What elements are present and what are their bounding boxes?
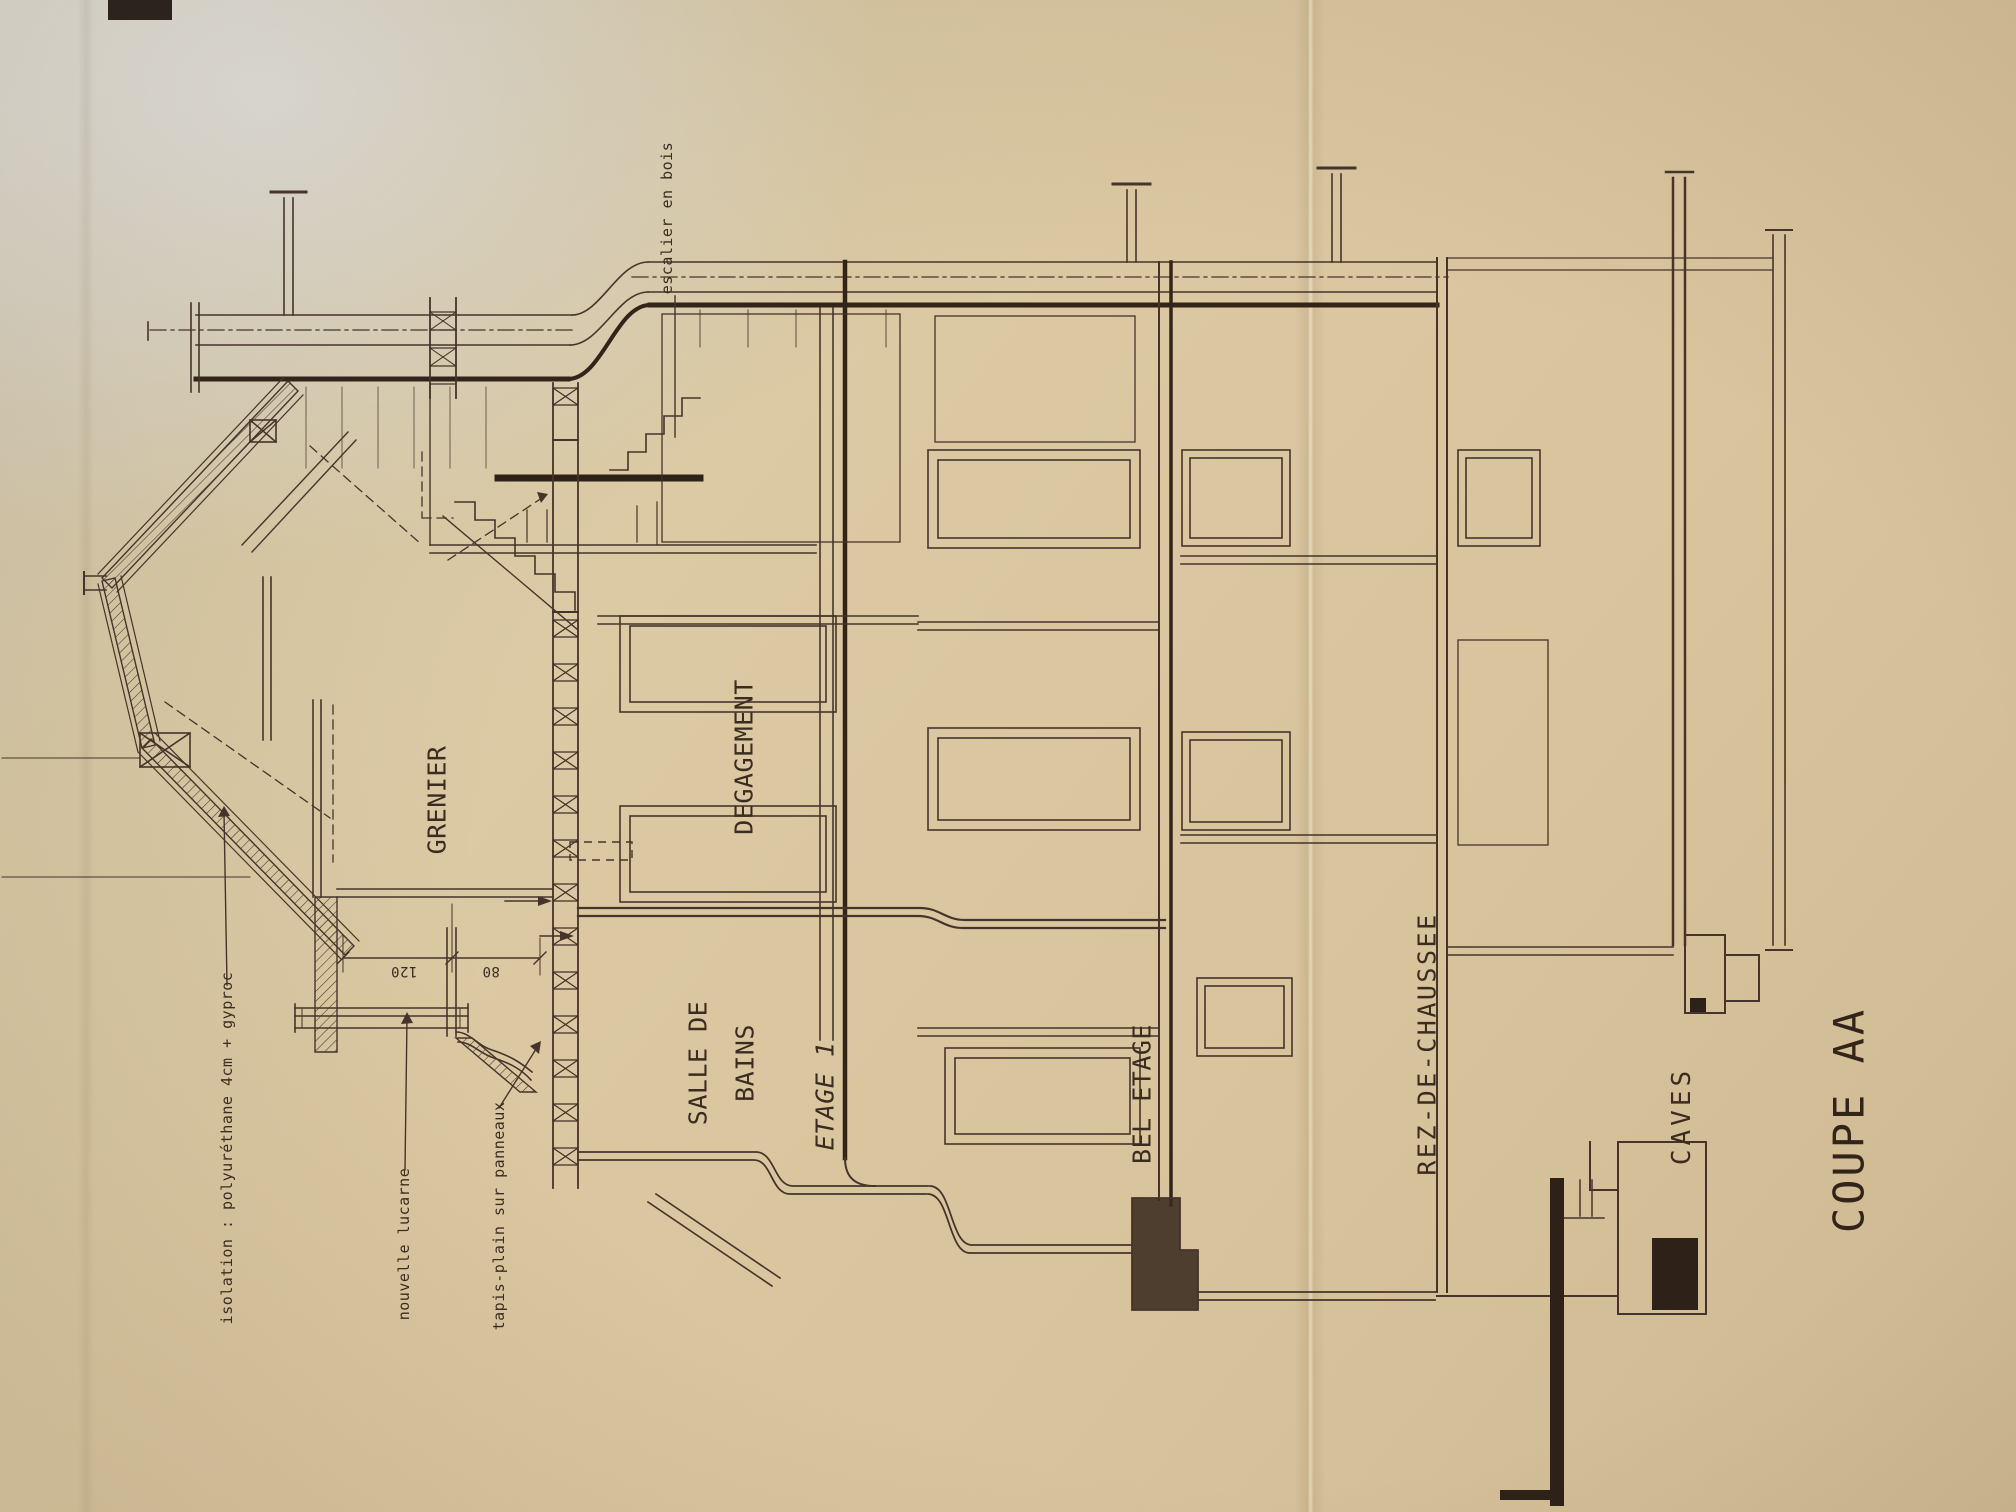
room-label-degagement: DEGAGEMENT: [730, 679, 759, 835]
dimension-80: 80: [482, 963, 500, 979]
room-label-grenier: GRENIER: [423, 746, 452, 855]
roof-gable: [2, 377, 548, 1092]
partition-walls: [578, 314, 1673, 1036]
annotation-nouvelle-lucarne: nouvelle lucarne: [395, 1168, 413, 1321]
attic-floor-structure: [337, 310, 886, 1188]
level-label-caves: CAVES: [1667, 1067, 1697, 1165]
annotation-tapis-plain: tapis-plain sur panneaux: [490, 1102, 508, 1331]
dimension-120: 120: [391, 963, 418, 979]
annotation-escalier-en-bois: escalier en bois: [658, 142, 676, 295]
dimension-lines: [337, 904, 546, 975]
floor-insulation-blocks: [553, 388, 578, 1165]
foundations-ground: [1500, 230, 1792, 1506]
party-wall-band: [148, 168, 1772, 392]
leader-lines: [218, 296, 675, 1170]
drawing-title: COUPE AA: [1825, 1007, 1874, 1233]
wooden-stairs: [242, 298, 700, 630]
annotation-isolation: isolation : polyuréthane 4cm + gyproc: [218, 972, 236, 1325]
level-label-bel-etage: BEL ETAGE: [1128, 1024, 1157, 1164]
photographed-plan: escalier en bois isolation : polyuréthan…: [0, 0, 2016, 1512]
room-label-salle-de-bains-line2: BAINS: [731, 1024, 760, 1102]
level-label-rez-de-chaussee: REZ-DE-CHAUSSEE: [1413, 912, 1442, 1175]
room-label-salle-de-bains-line1: SALLE DE: [684, 1001, 713, 1125]
street-facade: [578, 1152, 1618, 1310]
door-window-frames: [570, 450, 1548, 1144]
section-linework: [0, 0, 2016, 1512]
level-label-etage-1: ETAGE 1: [811, 1042, 840, 1151]
